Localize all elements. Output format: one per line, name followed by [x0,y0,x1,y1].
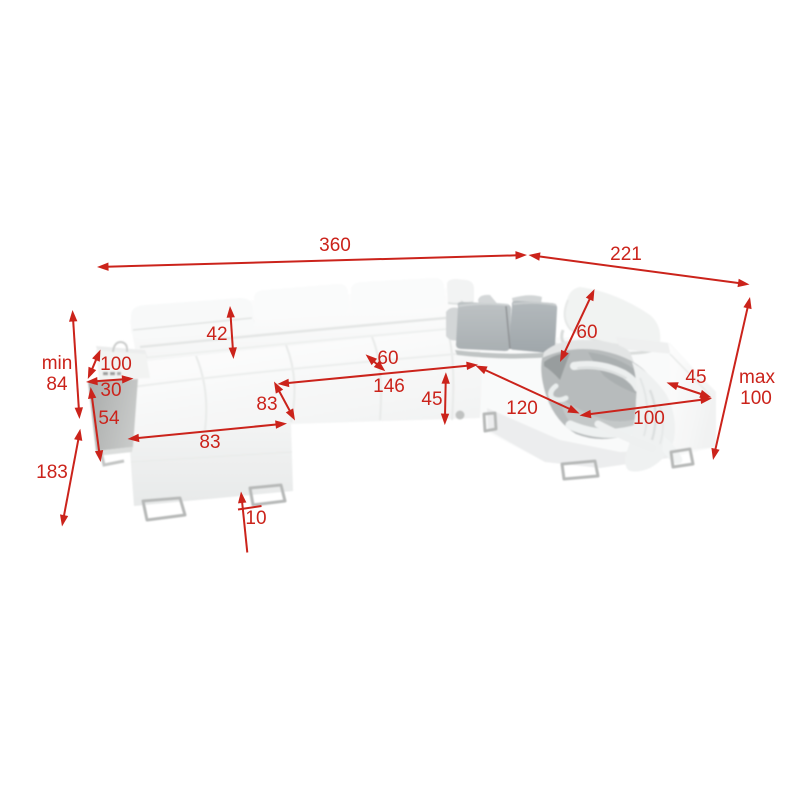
svg-text:360: 360 [319,235,351,256]
svg-text:100: 100 [633,408,665,429]
svg-text:min: min [42,353,73,374]
svg-text:100: 100 [740,388,772,409]
svg-text:10: 10 [245,508,266,529]
svg-text:120: 120 [506,398,538,419]
svg-text:45: 45 [685,367,706,388]
svg-text:100: 100 [100,354,132,375]
svg-text:42: 42 [206,324,227,345]
svg-text:54: 54 [98,408,120,429]
svg-text:83: 83 [199,432,220,453]
svg-text:84: 84 [46,374,68,395]
svg-text:146: 146 [373,376,405,397]
svg-text:221: 221 [610,244,642,265]
svg-text:30: 30 [100,380,121,401]
svg-text:45: 45 [421,389,442,410]
svg-text:183: 183 [36,462,68,483]
svg-text:max: max [739,367,775,388]
svg-text:83: 83 [256,394,277,415]
svg-text:60: 60 [377,348,398,369]
svg-text:60: 60 [576,322,597,343]
